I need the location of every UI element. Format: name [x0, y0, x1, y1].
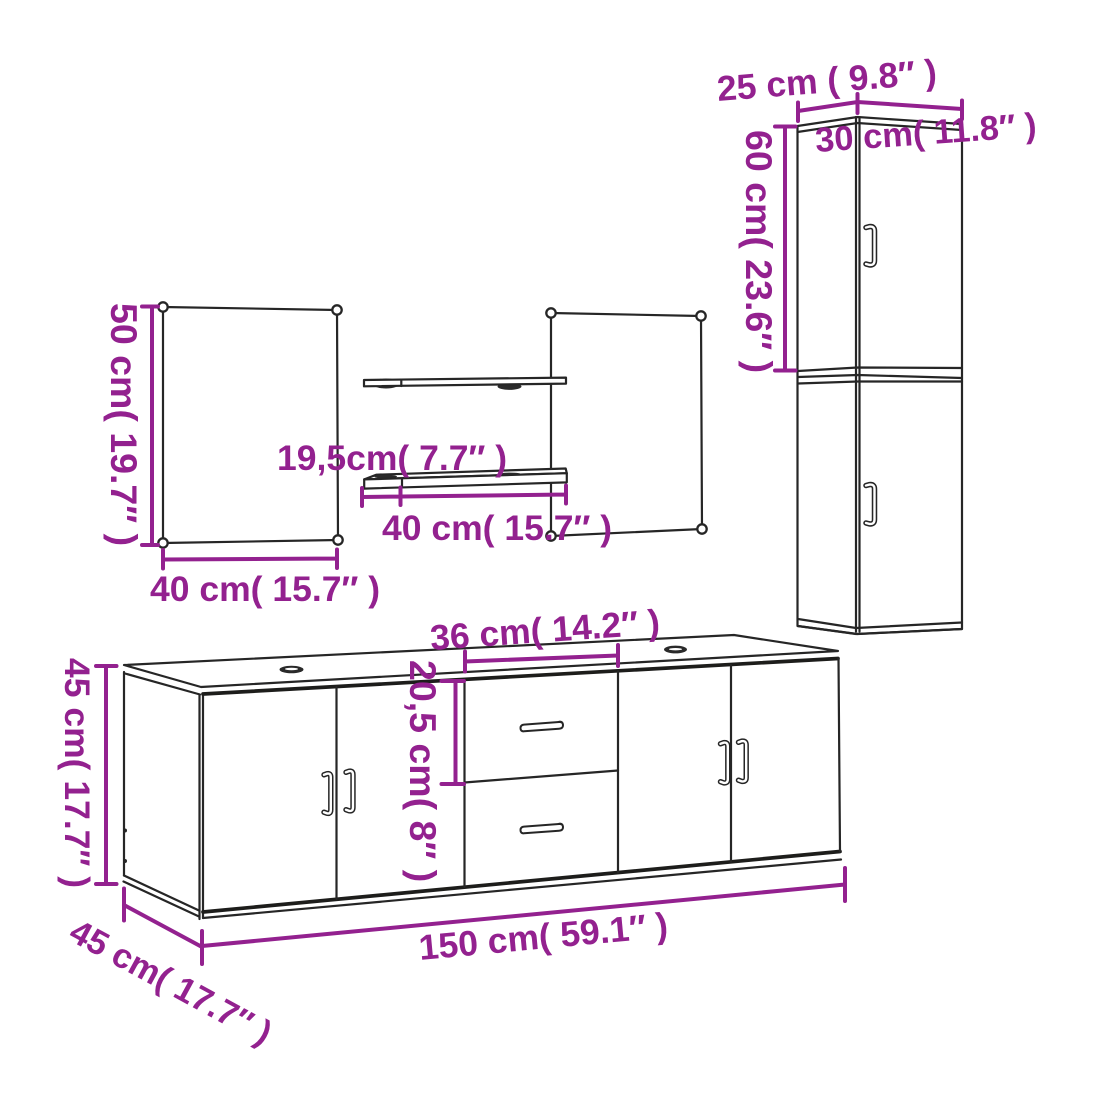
svg-text:20,5 cm( 8″ ): 20,5 cm( 8″ ) [402, 660, 444, 882]
svg-text:19,5cm( 7.7″ ): 19,5cm( 7.7″ ) [277, 438, 507, 478]
svg-text:40 cm( 15.7″ ): 40 cm( 15.7″ ) [150, 569, 380, 609]
svg-text:50 cm( 19.7″ ): 50 cm( 19.7″ ) [103, 303, 145, 546]
svg-text:40 cm( 15.7″ ): 40 cm( 15.7″ ) [382, 508, 612, 548]
svg-text:45 cm( 17.7″ ): 45 cm( 17.7″ ) [57, 658, 97, 888]
svg-text:60 cm( 23.6″ ): 60 cm( 23.6″ ) [738, 130, 780, 373]
